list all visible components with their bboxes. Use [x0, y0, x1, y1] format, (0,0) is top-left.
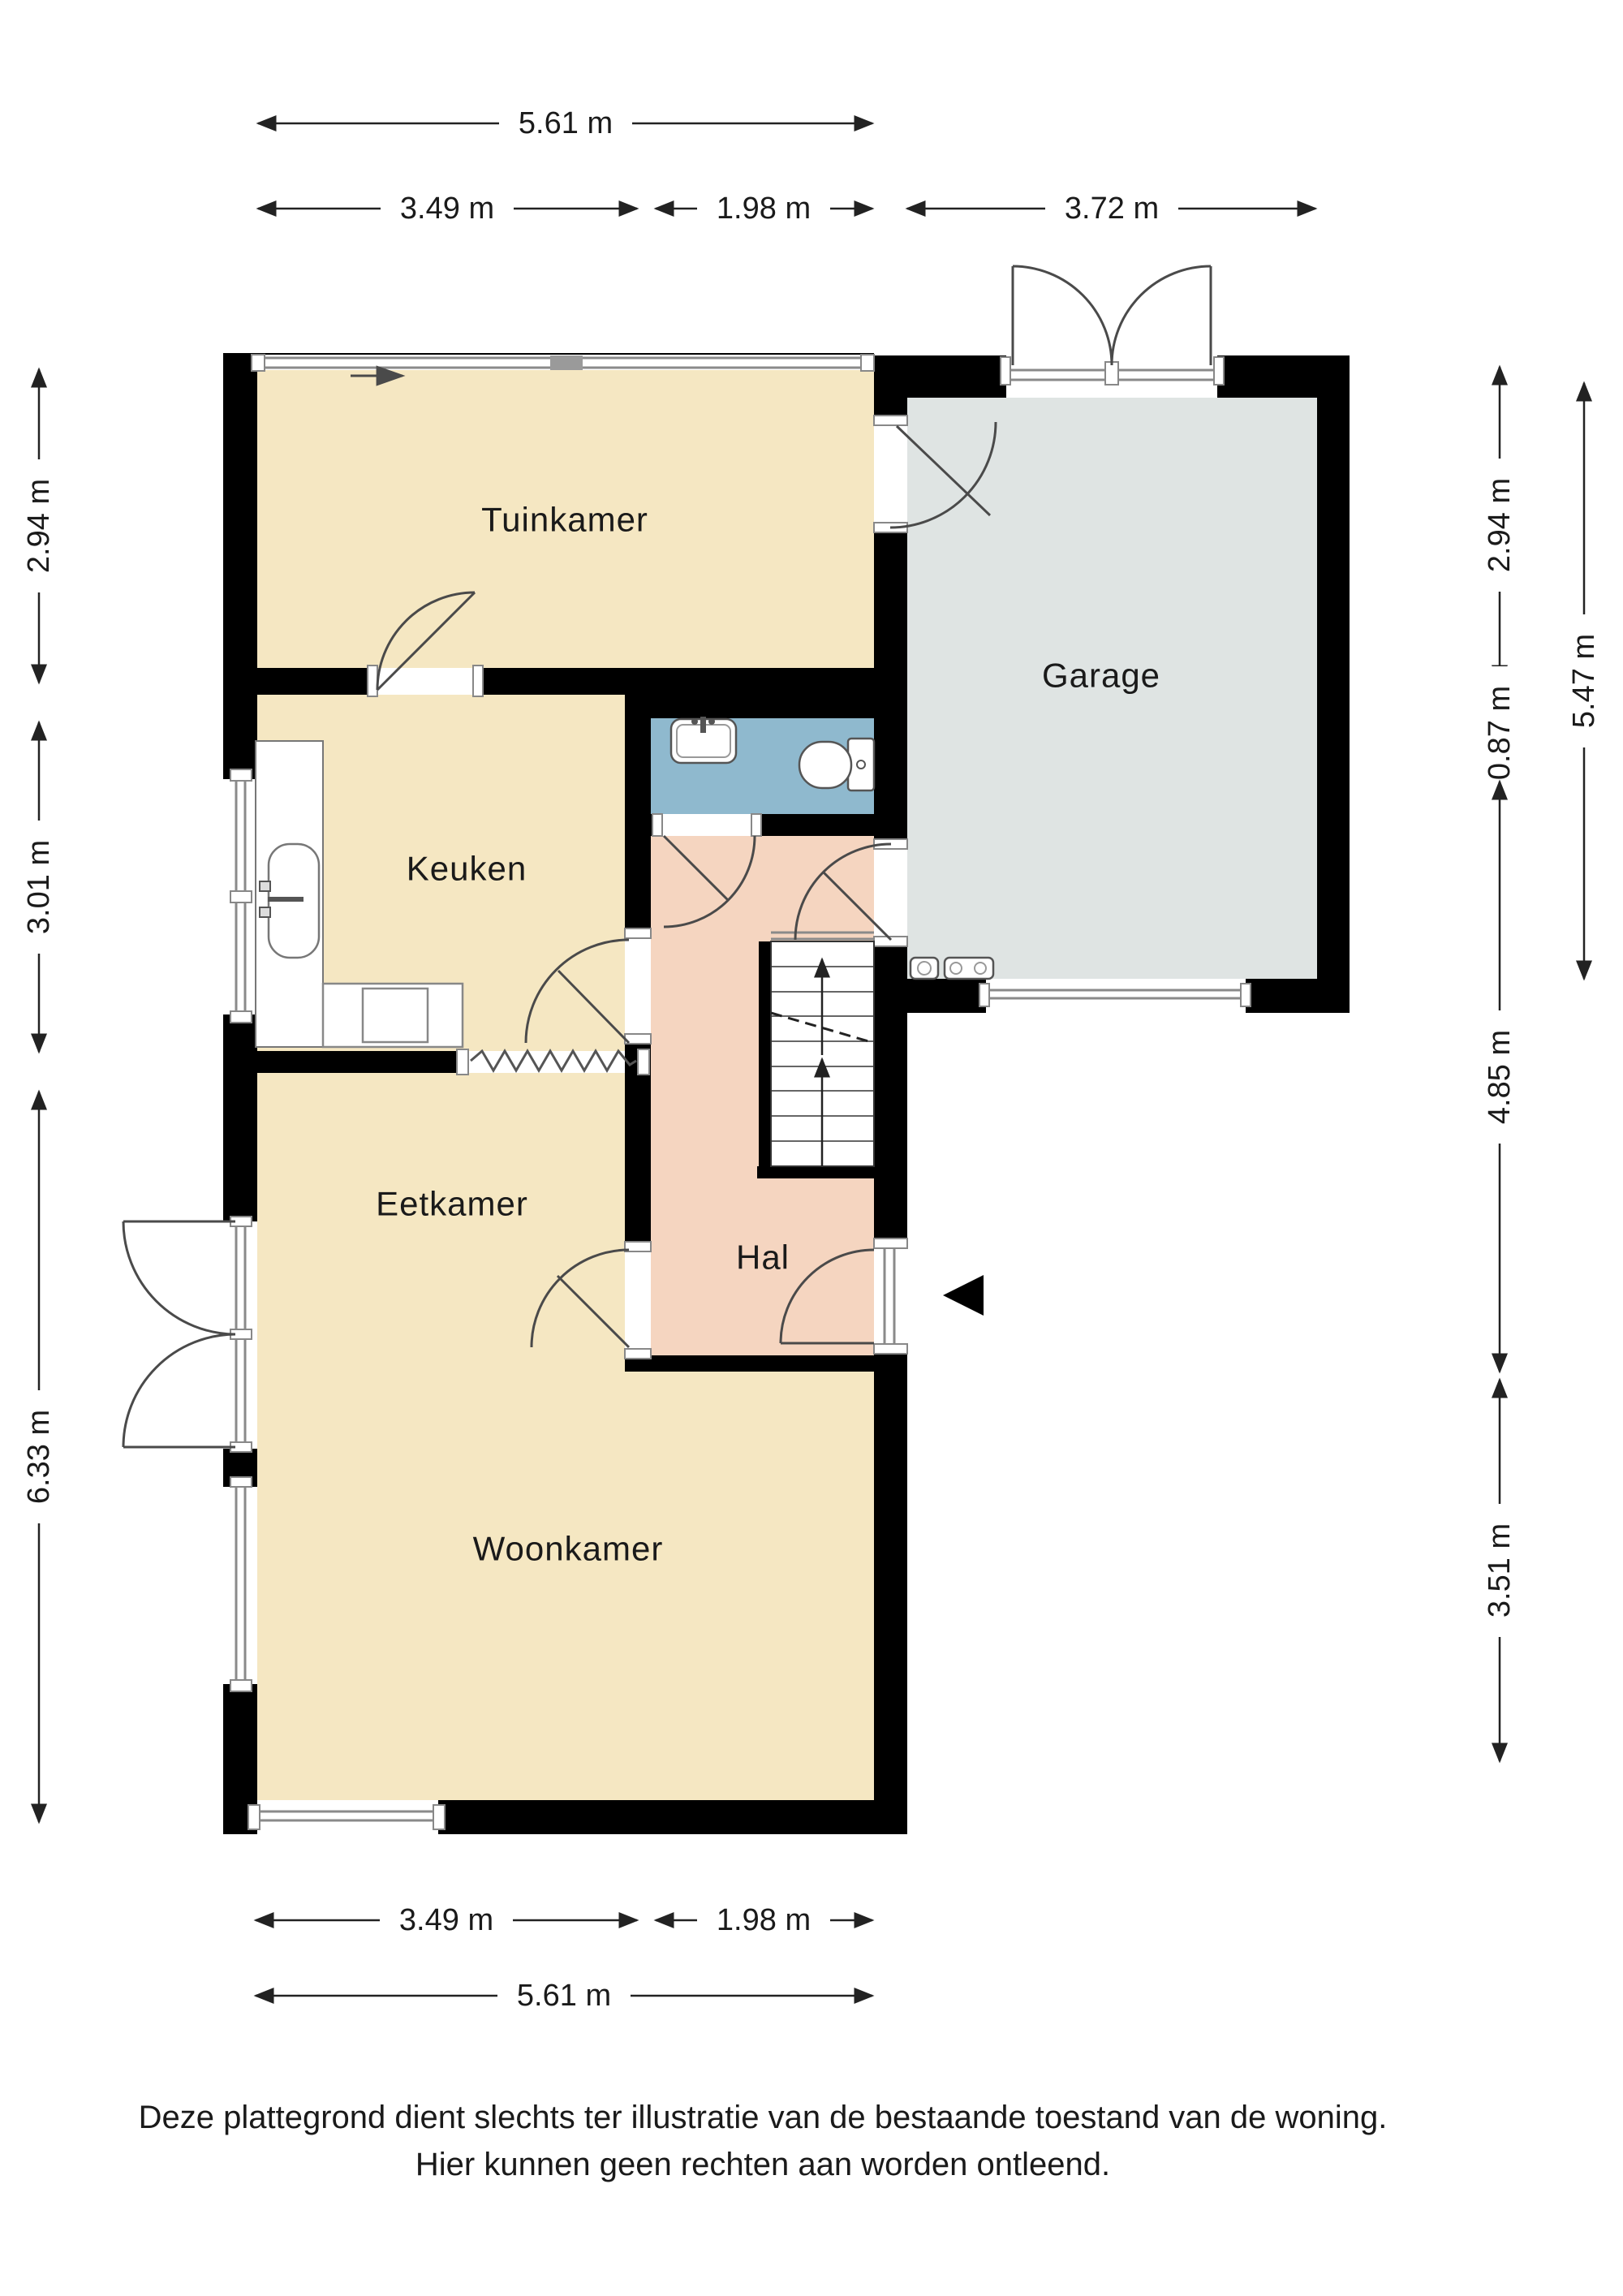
label-tuinkamer: Tuinkamer — [481, 501, 648, 539]
wall-tuinkamer-bottom-left — [223, 668, 373, 695]
door-french-doors-left — [123, 1221, 235, 1447]
wall-garage-right — [1317, 355, 1350, 1013]
disclaimer: Deze plattegrond dient slechts ter illus… — [139, 2100, 1388, 2182]
label-keuken: Keuken — [407, 850, 527, 888]
wall-right-c — [874, 941, 907, 1243]
svg-text:3.72 m: 3.72 m — [1065, 192, 1159, 226]
dimension-left-living: 6.33 m — [20, 1092, 58, 1822]
window-woonkamer-bottom — [252, 1805, 440, 1829]
dimension-left-tuinkamer: 2.94 m — [20, 369, 58, 683]
open-passage-zigzag — [471, 1051, 636, 1070]
disclaimer-line-2: Hier kunnen geen rechten aan worden ontl… — [415, 2147, 1110, 2182]
svg-text:2.94 m: 2.94 m — [22, 479, 56, 573]
window-woonkamer-left — [232, 1481, 250, 1688]
dimension-right-woonkamer: 3.51 m — [1481, 1380, 1518, 1761]
bathroom-sink — [671, 717, 736, 763]
dimension-right-strip: 0.87 m — [1481, 666, 1518, 799]
stairs — [771, 941, 874, 1166]
wall-right-d — [874, 1349, 907, 1834]
wall-garage-top-left — [874, 355, 1006, 398]
svg-text:3.49 m: 3.49 m — [400, 192, 494, 226]
label-hal: Hal — [736, 1238, 790, 1277]
label-garage: Garage — [1042, 657, 1160, 695]
svg-text:1.98 m: 1.98 m — [717, 1903, 811, 1937]
svg-text:2.94 m: 2.94 m — [1483, 478, 1517, 572]
wall-stairs-bottom — [757, 1166, 874, 1178]
garage-meters — [911, 958, 993, 979]
bathroom-faucet — [700, 717, 706, 733]
kitchen-faucet-knob-2 — [260, 907, 270, 917]
floor-plan-drawing: Tuinkamer Garage Keuken Eetkamer Hal Woo… — [0, 0, 1623, 2296]
wall-house-bottom — [438, 1800, 907, 1834]
wall-left-mid — [223, 1014, 257, 1221]
svg-text:1.98 m: 1.98 m — [717, 192, 811, 226]
svg-text:3.01 m: 3.01 m — [22, 840, 56, 934]
dimension-left-keuken: 3.01 m — [20, 722, 58, 1052]
dimension-bottom-middle: 1.98 m — [656, 1902, 872, 1939]
entrance-arrow-icon — [943, 1275, 984, 1316]
floor-plan-page: Tuinkamer Garage Keuken Eetkamer Hal Woo… — [0, 0, 1623, 2296]
wall-bathroom-bottom-right — [755, 814, 874, 836]
toilet — [799, 739, 874, 790]
svg-text:5.47 m: 5.47 m — [1567, 634, 1601, 728]
room-eetkamer-floor — [257, 1073, 625, 1800]
svg-text:5.61 m: 5.61 m — [517, 1979, 611, 2013]
dimension-right-hal: 4.85 m — [1481, 782, 1518, 1372]
dimension-top-garage: 3.72 m — [907, 190, 1315, 227]
svg-text:4.85 m: 4.85 m — [1483, 1030, 1517, 1124]
label-woonkamer: Woonkamer — [473, 1530, 664, 1568]
window-tuinkamer-top-mullion — [550, 355, 583, 370]
kitchen-counter — [256, 741, 323, 1047]
dimension-top-left: 3.49 m — [258, 190, 637, 227]
room-woonkamer-floor — [625, 1372, 874, 1800]
door-garage-double — [1013, 266, 1211, 365]
kitchen-stove — [323, 984, 463, 1047]
svg-text:5.61 m: 5.61 m — [519, 106, 613, 140]
room-hal-floor-left — [651, 941, 759, 1178]
wall-right-b — [874, 526, 907, 844]
svg-text:0.87 m: 0.87 m — [1483, 686, 1517, 780]
dimension-top-total: 5.61 m — [258, 105, 872, 142]
disclaimer-line-1: Deze plattegrond dient slechts ter illus… — [139, 2100, 1388, 2135]
dimension-right-garage: 5.47 m — [1565, 383, 1603, 979]
label-eetkamer: Eetkamer — [376, 1185, 528, 1223]
wall-stairs-left — [759, 941, 771, 1166]
dimension-top-middle: 1.98 m — [656, 190, 872, 227]
wall-bathroom-top — [625, 668, 907, 718]
svg-text:3.49 m: 3.49 m — [399, 1903, 493, 1937]
window-garage-bottom — [986, 985, 1246, 1005]
wall-keuken-bottom — [257, 1051, 468, 1073]
svg-text:6.33 m: 6.33 m — [22, 1410, 56, 1504]
dimension-right-tuinkamer: 2.94 m — [1481, 367, 1518, 683]
dimension-bottom-left: 3.49 m — [256, 1902, 637, 1939]
wall-garage-bottom-left — [907, 979, 986, 1013]
wall-garage-bottom-right — [1246, 979, 1350, 1013]
wall-hal-bottom — [625, 1355, 907, 1372]
dimension-bottom-total: 5.61 m — [256, 1977, 872, 2014]
wall-left-top — [223, 353, 257, 779]
kitchen-faucet-knob-1 — [260, 881, 270, 891]
svg-text:3.51 m: 3.51 m — [1483, 1523, 1517, 1618]
